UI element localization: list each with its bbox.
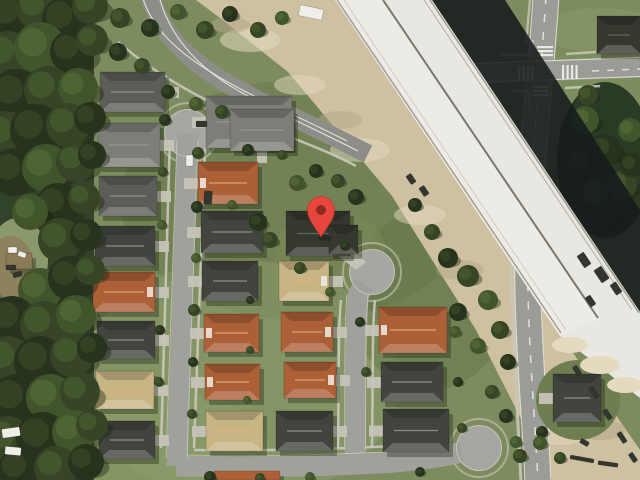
driveway (539, 393, 553, 404)
house (281, 312, 337, 357)
house (214, 471, 284, 480)
driveway (192, 426, 206, 437)
house (100, 72, 169, 117)
house (96, 371, 158, 414)
satellite-map-canvas[interactable] (0, 0, 640, 480)
house (98, 123, 164, 172)
vehicle-light (5, 446, 22, 455)
driveway (369, 426, 383, 437)
driveway (367, 377, 381, 388)
house (206, 411, 267, 456)
driveway (365, 325, 379, 336)
house (99, 176, 161, 221)
house (553, 374, 605, 427)
driveway (187, 227, 201, 238)
vehicle-dark (196, 121, 207, 127)
house (383, 409, 453, 457)
driveway (188, 276, 202, 287)
vehicle-light (8, 247, 17, 253)
driveway (191, 377, 205, 388)
house (597, 16, 640, 59)
house (381, 362, 447, 407)
driveway (190, 328, 204, 339)
house (205, 364, 264, 405)
vehicle-dark (204, 191, 213, 205)
driveway (184, 178, 198, 189)
house (379, 307, 451, 358)
map-viewport[interactable] (0, 0, 640, 480)
house (284, 362, 340, 403)
vehicle-dark (6, 265, 16, 270)
house (95, 226, 159, 271)
vehicle-light (186, 155, 193, 166)
house (230, 109, 298, 156)
house (276, 411, 337, 456)
deck-end-dirt (552, 337, 588, 353)
